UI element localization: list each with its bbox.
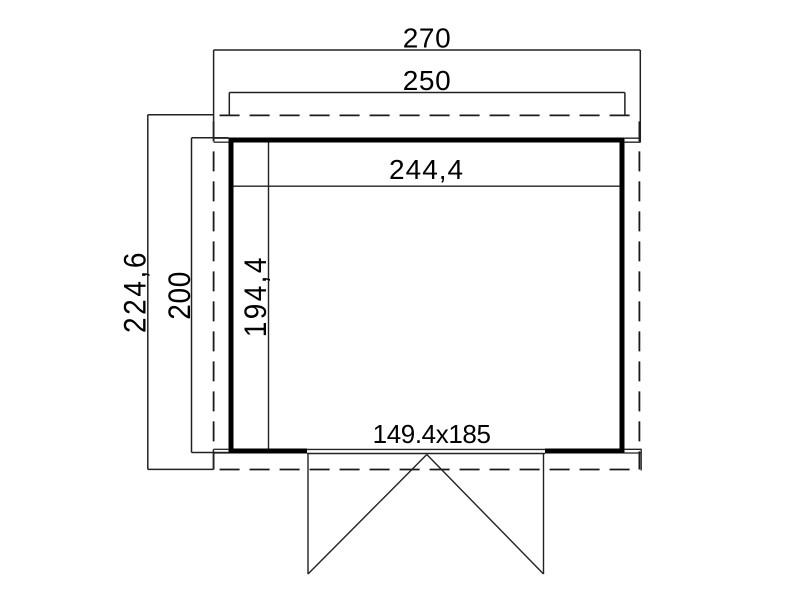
svg-text:224,6: 224,6: [118, 250, 153, 333]
svg-text:270: 270: [403, 23, 452, 54]
svg-text:244,4: 244,4: [389, 154, 464, 185]
svg-text:194,4: 194,4: [238, 255, 273, 337]
svg-text:149.4x185: 149.4x185: [373, 419, 491, 449]
svg-text:250: 250: [403, 65, 452, 96]
svg-text:200: 200: [162, 271, 197, 320]
